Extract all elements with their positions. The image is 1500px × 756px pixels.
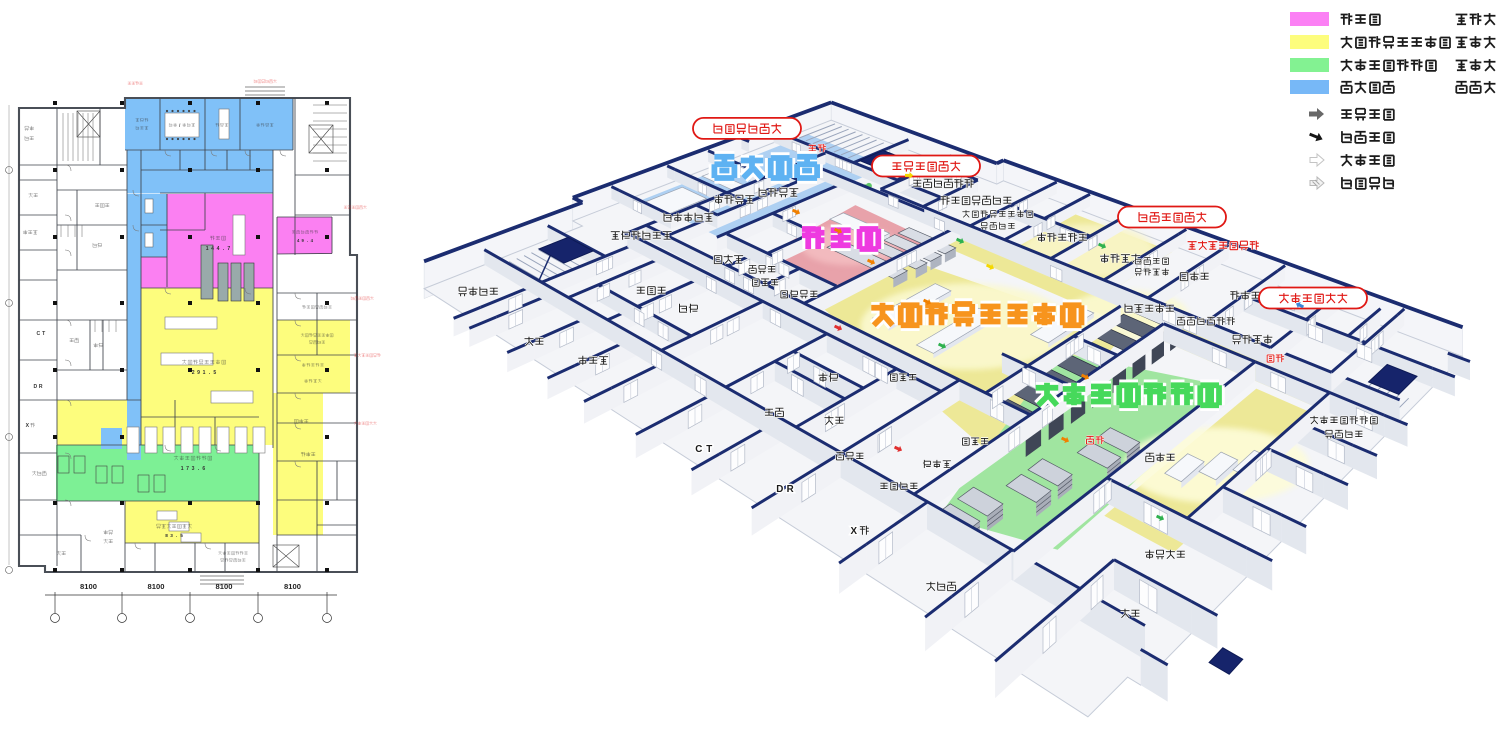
svg-text:8100: 8100 [284, 582, 301, 591]
svg-text:6: 6 [202, 466, 205, 472]
svg-text:1: 1 [206, 246, 209, 252]
svg-text:T: T [706, 444, 712, 455]
svg-text:7: 7 [227, 246, 230, 252]
svg-text:8100: 8100 [216, 582, 233, 591]
svg-text:R: R [787, 484, 794, 495]
svg-text:D: D [33, 384, 37, 390]
svg-text:3: 3 [192, 466, 195, 472]
svg-text:.: . [176, 533, 177, 538]
svg-text:2: 2 [192, 370, 195, 376]
svg-text:T: T [42, 331, 46, 337]
svg-text:5: 5 [180, 533, 183, 538]
svg-text:1: 1 [181, 466, 184, 472]
svg-text:R: R [39, 384, 43, 390]
svg-text:4: 4 [211, 246, 214, 252]
svg-text:8100: 8100 [80, 582, 97, 591]
svg-text:X: X [26, 423, 30, 429]
svg-text:.: . [307, 238, 308, 243]
svg-text:3: 3 [170, 533, 173, 538]
svg-text:8100: 8100 [148, 582, 165, 591]
svg-text:5: 5 [213, 370, 216, 376]
svg-text:1: 1 [203, 370, 206, 376]
svg-text:C: C [36, 331, 40, 337]
svg-text:8: 8 [165, 533, 168, 538]
svg-text:9: 9 [197, 370, 200, 376]
svg-text:D: D [776, 484, 783, 495]
svg-text:4: 4 [217, 246, 220, 252]
svg-text:7: 7 [186, 466, 189, 472]
svg-text:C: C [695, 444, 702, 455]
svg-text:X: X [851, 526, 858, 537]
